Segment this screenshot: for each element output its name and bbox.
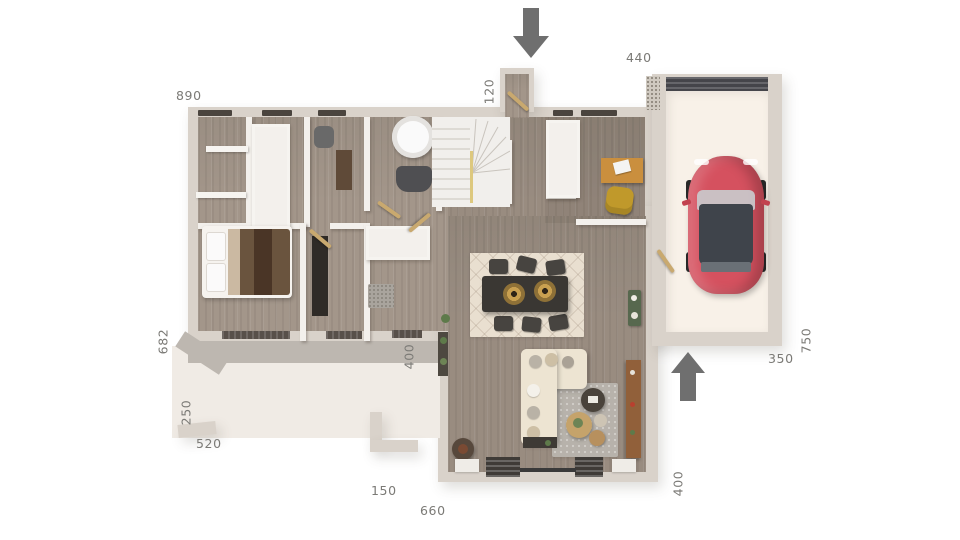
dining-chair <box>545 259 566 276</box>
floor-plan-canvas: 890 120 440 682 250 520 150 660 400 350 … <box>0 0 960 540</box>
stone-pillar <box>646 76 660 110</box>
plant <box>440 337 447 344</box>
car-roof-glass <box>699 204 753 266</box>
bedroom-window-sill <box>326 331 362 339</box>
toilet <box>396 166 432 192</box>
window-sill <box>262 110 292 116</box>
open-wardrobe-rack <box>366 226 430 260</box>
dining-chair <box>521 316 541 333</box>
window-sill <box>198 110 232 116</box>
dim-890: 890 <box>176 88 202 103</box>
garage-entrance-arrow-shaft <box>680 373 696 401</box>
plant-ladder-shelf <box>438 332 448 376</box>
dining-chair <box>489 259 508 274</box>
bathtub <box>392 116 434 158</box>
front-entrance-arrow-head <box>513 36 549 58</box>
bed-pillow <box>206 263 226 292</box>
plant <box>440 358 447 365</box>
bedroom-window-sill <box>222 331 290 339</box>
plant-pot <box>441 314 450 323</box>
decor-item <box>630 402 635 407</box>
staircase <box>432 117 510 207</box>
sofa-pillow <box>527 384 540 397</box>
doormat <box>486 457 520 477</box>
pendant-lamp <box>503 283 525 305</box>
wall-closet-wc <box>304 117 310 227</box>
decor-item <box>630 430 635 435</box>
dim-440: 440 <box>626 50 652 65</box>
front-entrance-arrow-down <box>523 8 539 36</box>
green-console <box>628 290 641 326</box>
hall-closet <box>546 120 580 198</box>
dim-400-living: 400 <box>671 462 686 506</box>
dim-120: 120 <box>482 70 497 114</box>
storage-counter <box>196 192 246 198</box>
sofa-pillow <box>527 406 540 419</box>
dim-520: 520 <box>196 436 222 451</box>
sofa-pillow <box>545 353 558 366</box>
plant <box>573 418 583 428</box>
laundry-sink <box>314 126 334 148</box>
flower <box>631 295 637 301</box>
gray-rug <box>368 284 394 308</box>
coffee-table-book <box>588 396 598 403</box>
dim-400-terrace: 400 <box>402 335 417 379</box>
dim-350: 350 <box>768 351 794 366</box>
garage-door <box>666 77 768 91</box>
dim-682: 682 <box>156 320 171 364</box>
plant <box>545 440 551 446</box>
media-bench <box>523 437 557 448</box>
bed-throw <box>254 229 272 295</box>
dressing-wardrobe <box>312 236 328 316</box>
pendant-lamp <box>534 280 556 302</box>
terrace-corner-wall-h <box>370 440 418 452</box>
wall-wc-bath <box>364 117 370 211</box>
car-headlight <box>743 159 758 165</box>
tall-cabinet <box>336 150 352 190</box>
dining-chair <box>494 316 513 331</box>
wall-office-bottom <box>576 219 646 225</box>
dim-660: 660 <box>420 503 446 518</box>
side-stool <box>594 414 607 427</box>
pouf <box>589 430 605 446</box>
window-ledge <box>455 459 479 472</box>
flower <box>631 312 638 319</box>
window-sill <box>553 110 573 116</box>
doormat <box>575 457 603 477</box>
car-rear-window <box>701 262 751 272</box>
sofa-pillow <box>562 356 574 368</box>
office-chair <box>604 185 634 215</box>
window-track <box>520 468 576 472</box>
sideboard <box>626 360 641 458</box>
sofa-pillow <box>529 355 542 368</box>
decor-item <box>630 370 635 375</box>
coffee-table-wood <box>566 412 592 438</box>
window-ledge <box>612 459 636 472</box>
dim-150: 150 <box>371 483 397 498</box>
dim-750: 750 <box>799 319 814 363</box>
side-table-lamp <box>452 438 474 460</box>
dim-250: 250 <box>179 391 194 435</box>
bed-pillow <box>206 232 226 261</box>
coffee-table-dark <box>581 388 605 412</box>
window-sill <box>318 110 346 116</box>
lamp-shade <box>458 444 468 454</box>
double-bed <box>202 226 292 298</box>
wall-bedroom-right <box>300 223 306 341</box>
window-sill <box>581 110 617 116</box>
garage-entrance-arrow-up <box>671 352 705 373</box>
red-car <box>688 156 764 294</box>
car-headlight <box>694 159 709 165</box>
storage-shelf <box>206 146 248 152</box>
